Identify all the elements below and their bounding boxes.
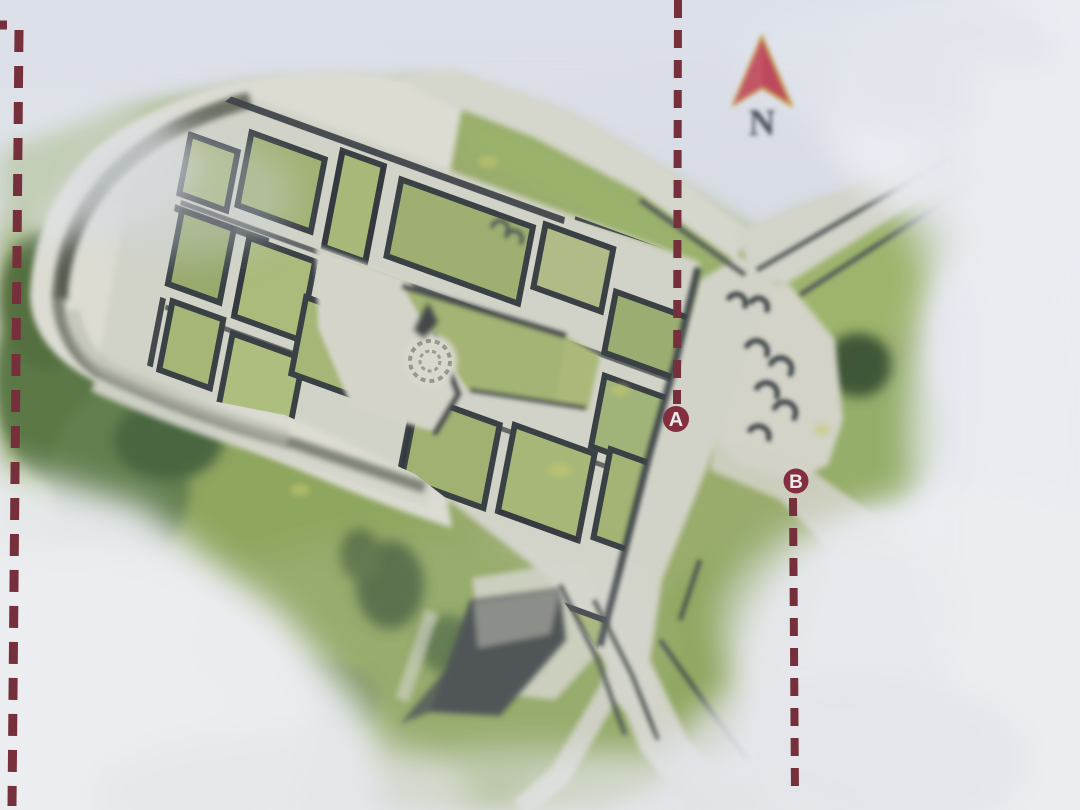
svg-text:N: N [749,103,776,144]
svg-text:A: A [669,409,683,431]
svg-text:B: B [789,472,803,493]
